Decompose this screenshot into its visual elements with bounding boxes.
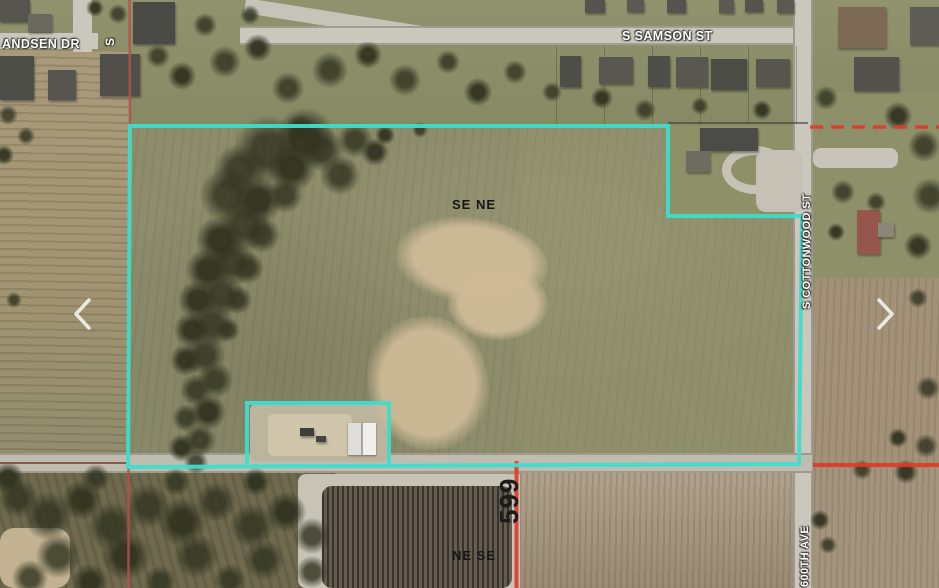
chevron-right-icon [870,295,900,333]
parcel-boundary [128,126,802,467]
boundary-overlay [0,0,939,588]
road-number-label-599: 599 [494,462,525,524]
previous-photo-button[interactable] [53,276,83,314]
street-label-andsen-dr: ANDSEN DR [2,37,80,51]
street-label-cottonwood-st: S COTTONWOOD ST [801,181,813,309]
quarter-section-label-se-ne: SE NE [452,197,496,212]
section-line-west-top [130,0,131,126]
quarter-section-label-ne-se: NE SE [452,548,496,563]
chevron-left-icon [68,295,98,333]
street-label-samson-st: S SAMSON ST [622,29,713,43]
street-label-600th-ave: 600TH AVE [799,505,811,587]
street-label-stub: S [103,6,117,46]
homestead-carveout-boundary [247,403,389,464]
next-photo-button[interactable] [855,276,885,314]
aerial-parcel-map: ANDSEN DR S S SAMSON ST S COTTONWOOD ST … [0,0,939,588]
